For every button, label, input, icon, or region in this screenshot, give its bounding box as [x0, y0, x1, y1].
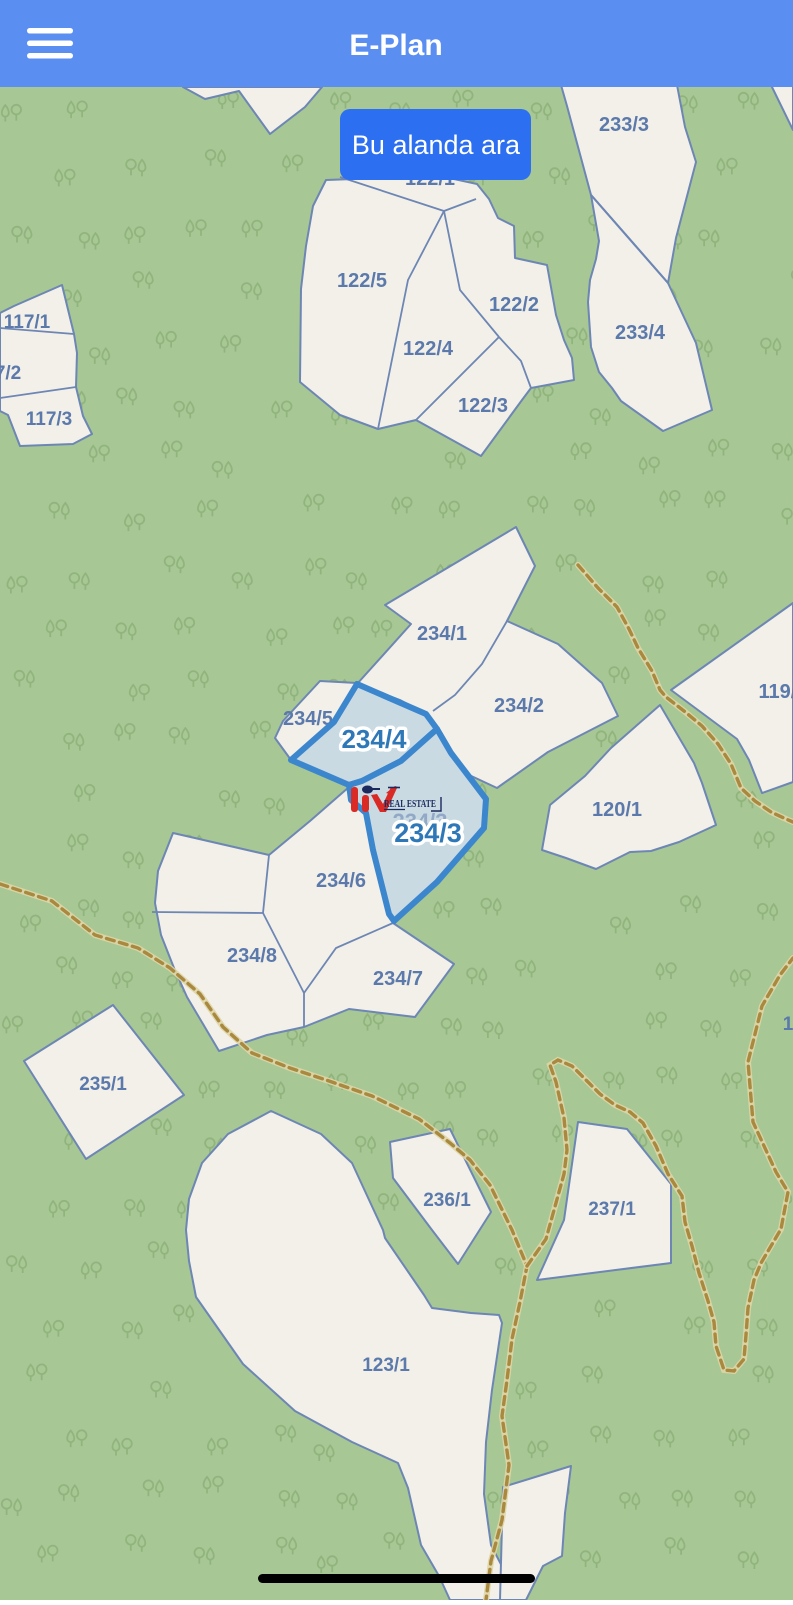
svg-text:REAL ESTATE: REAL ESTATE — [384, 799, 436, 810]
svg-text:123/1: 123/1 — [362, 1355, 410, 1376]
svg-text:117/2: 117/2 — [0, 363, 21, 384]
svg-text:117/3: 117/3 — [26, 409, 73, 430]
svg-text:233/4: 233/4 — [615, 322, 666, 344]
svg-text:1: 1 — [783, 1014, 793, 1035]
svg-text:234/1: 234/1 — [417, 623, 467, 645]
svg-text:234/3: 234/3 — [394, 818, 462, 848]
svg-text:122/3: 122/3 — [458, 395, 508, 417]
svg-text:235/1: 235/1 — [79, 1074, 127, 1095]
svg-text:234/6: 234/6 — [316, 870, 366, 892]
svg-text:234/8: 234/8 — [227, 945, 277, 967]
svg-text:120/1: 120/1 — [592, 799, 642, 821]
svg-text:122/4: 122/4 — [403, 338, 454, 360]
svg-text:119/1: 119/1 — [759, 681, 793, 703]
svg-text:122/2: 122/2 — [489, 294, 539, 316]
svg-text:237/1: 237/1 — [588, 1199, 636, 1220]
svg-text:233/3: 233/3 — [599, 114, 649, 136]
svg-text:Bu alanda ara: Bu alanda ara — [352, 130, 521, 160]
svg-text:234/7: 234/7 — [373, 968, 423, 990]
svg-text:234/2: 234/2 — [494, 695, 544, 717]
svg-text:E-Plan: E-Plan — [349, 29, 442, 62]
svg-text:122/5: 122/5 — [337, 270, 387, 292]
svg-text:117/1: 117/1 — [4, 312, 51, 333]
svg-text:236/1: 236/1 — [423, 1190, 471, 1211]
svg-text:234/4: 234/4 — [341, 724, 407, 754]
